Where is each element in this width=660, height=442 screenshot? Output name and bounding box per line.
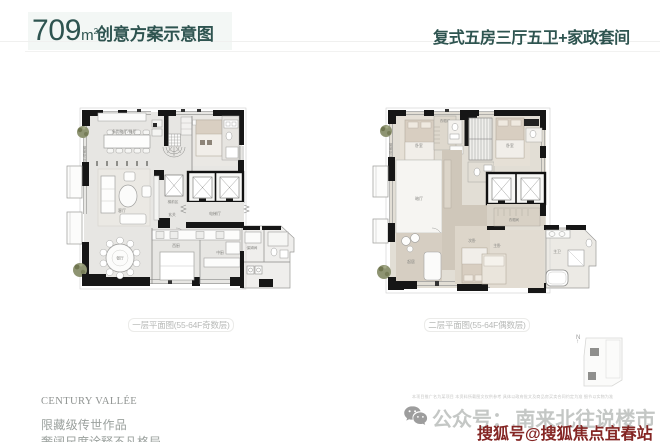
svg-text:主卧: 主卧	[493, 243, 501, 248]
svg-text:起居: 起居	[407, 259, 415, 264]
svg-text:电梯厅: 电梯厅	[209, 210, 221, 216]
svg-text:主卫: 主卫	[553, 249, 561, 254]
svg-text:次卧: 次卧	[468, 238, 476, 243]
svg-text:餐厅: 餐厅	[116, 256, 124, 261]
svg-text:多功能厅/餐厅: 多功能厅/餐厅	[111, 128, 136, 134]
svg-text:梯前区: 梯前区	[168, 199, 179, 204]
svg-text:窗景阳台: 窗景阳台	[82, 145, 87, 162]
svg-text:卧室: 卧室	[506, 143, 514, 148]
svg-text:玄关: 玄关	[168, 212, 176, 217]
svg-text:衣帽间: 衣帽间	[509, 217, 520, 222]
svg-text:保姆间: 保姆间	[247, 245, 258, 250]
svg-text:中厨: 中厨	[216, 250, 224, 255]
svg-text:西厨: 西厨	[172, 243, 180, 248]
svg-text:客厅: 客厅	[118, 207, 126, 213]
svg-text:卧室: 卧室	[415, 143, 423, 148]
svg-text:窗景阳台: 窗景阳台	[388, 142, 393, 159]
svg-text:暗厅: 暗厅	[415, 195, 423, 201]
